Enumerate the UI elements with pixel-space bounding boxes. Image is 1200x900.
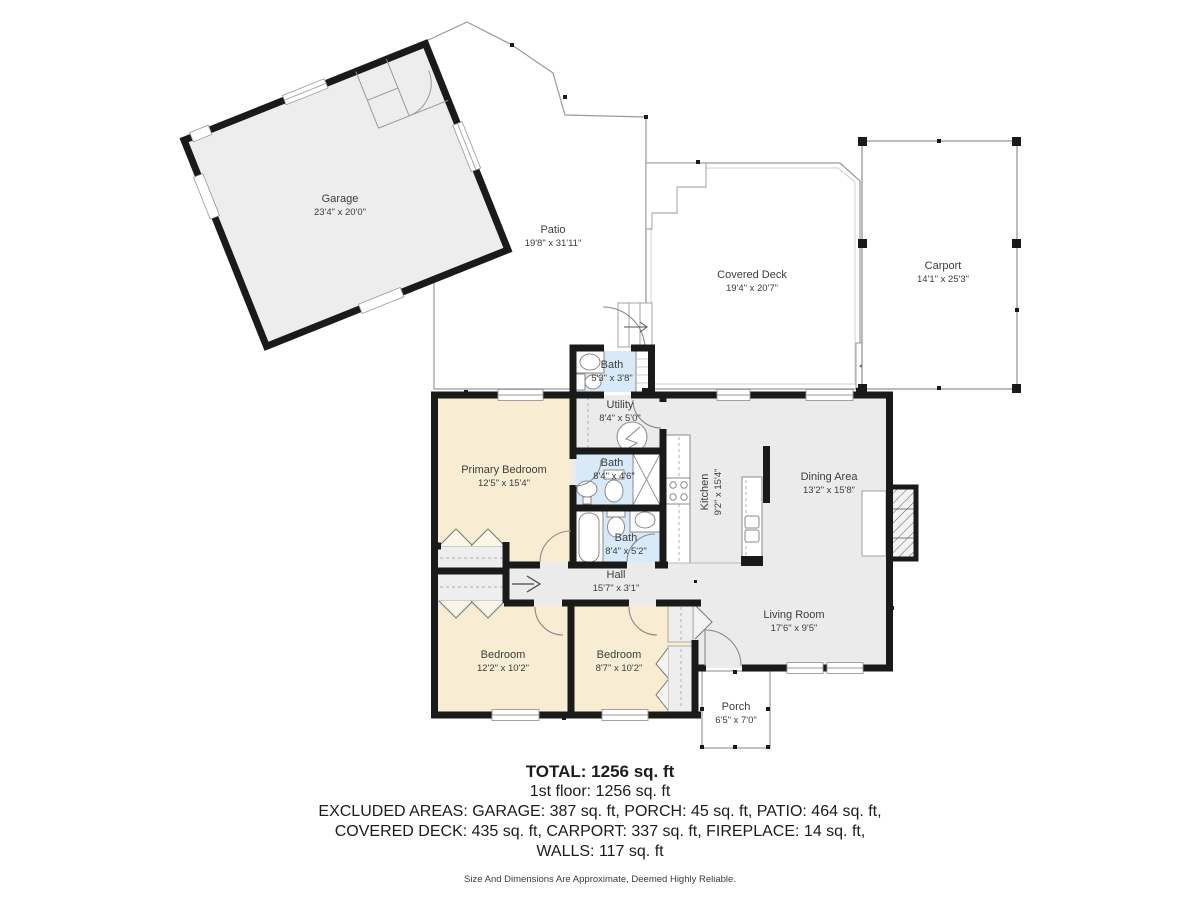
- svg-text:8'4" x 5'2": 8'4" x 5'2": [605, 546, 647, 557]
- first-floor-area: 1st floor: 1256 sq. ft: [0, 782, 1200, 802]
- svg-text:8'4" x 5'0": 8'4" x 5'0": [599, 413, 641, 424]
- svg-text:14'1" x 25'3": 14'1" x 25'3": [917, 274, 969, 285]
- window: [827, 663, 863, 674]
- svg-text:15'7" x 3'1": 15'7" x 3'1": [593, 583, 640, 594]
- window: [806, 390, 853, 401]
- area-summary: TOTAL: 1256 sq. ft 1st floor: 1256 sq. f…: [0, 762, 1200, 885]
- window: [717, 390, 750, 401]
- svg-text:Carport: Carport: [925, 260, 962, 272]
- excluded-areas-line-2: COVERED DECK: 435 sq. ft, CARPORT: 337 s…: [0, 822, 1200, 842]
- svg-text:Garage: Garage: [322, 193, 359, 205]
- window: [498, 390, 543, 401]
- svg-text:Dining Area: Dining Area: [801, 471, 859, 483]
- svg-text:Porch: Porch: [722, 701, 751, 713]
- svg-text:12'5" x 15'4": 12'5" x 15'4": [478, 478, 530, 489]
- svg-text:17'6" x 9'5": 17'6" x 9'5": [771, 623, 818, 634]
- window: [787, 663, 823, 674]
- stove-icon: [666, 478, 690, 504]
- shower-icon: [633, 454, 660, 505]
- svg-text:Utility: Utility: [607, 399, 634, 411]
- svg-text:Primary Bedroom: Primary Bedroom: [461, 464, 547, 476]
- svg-text:13'2" x 15'8": 13'2" x 15'8": [803, 485, 855, 496]
- svg-text:Bath: Bath: [601, 457, 624, 469]
- svg-text:Living Room: Living Room: [763, 609, 824, 621]
- disclaimer-text: Size And Dimensions Are Approximate, Dee…: [0, 874, 1200, 885]
- svg-text:5'3" x 3'8": 5'3" x 3'8": [591, 373, 633, 384]
- svg-text:6'5" x 7'0": 6'5" x 7'0": [715, 715, 757, 726]
- excluded-areas-line-1: EXCLUDED AREAS: GARAGE: 387 sq. ft, PORC…: [0, 802, 1200, 822]
- svg-text:19'4" x 20'7": 19'4" x 20'7": [726, 283, 778, 294]
- window: [602, 710, 648, 721]
- svg-text:Bedroom: Bedroom: [597, 649, 642, 661]
- svg-text:Patio: Patio: [540, 224, 565, 236]
- svg-text:Hall: Hall: [607, 569, 626, 581]
- svg-text:23'4" x 20'0": 23'4" x 20'0": [314, 207, 366, 218]
- sink-icon: [630, 509, 660, 532]
- svg-text:9'2" x 15'4": 9'2" x 15'4": [713, 469, 724, 516]
- window: [492, 710, 539, 721]
- svg-text:Kitchen: Kitchen: [699, 474, 711, 511]
- floor-plan-drawing: Garage 23'4" x 20'0" Patio 19'8" x 31'11…: [0, 0, 1200, 760]
- svg-text:12'2" x 10'2": 12'2" x 10'2": [477, 663, 529, 674]
- svg-text:Bath: Bath: [601, 359, 624, 371]
- bathtub-icon: [575, 509, 603, 566]
- svg-text:8'4" x 4'6": 8'4" x 4'6": [593, 471, 635, 482]
- total-area: TOTAL: 1256 sq. ft: [0, 762, 1200, 782]
- floor-plan-page: Garage 23'4" x 20'0" Patio 19'8" x 31'11…: [0, 0, 1200, 900]
- svg-text:8'7" x 10'2": 8'7" x 10'2": [596, 663, 643, 674]
- excluded-areas-line-3: WALLS: 117 sq. ft: [0, 842, 1200, 862]
- svg-text:Bath: Bath: [615, 532, 638, 544]
- svg-text:Bedroom: Bedroom: [481, 649, 526, 661]
- svg-text:Covered Deck: Covered Deck: [717, 269, 787, 281]
- svg-text:19'8" x 31'11": 19'8" x 31'11": [525, 238, 582, 249]
